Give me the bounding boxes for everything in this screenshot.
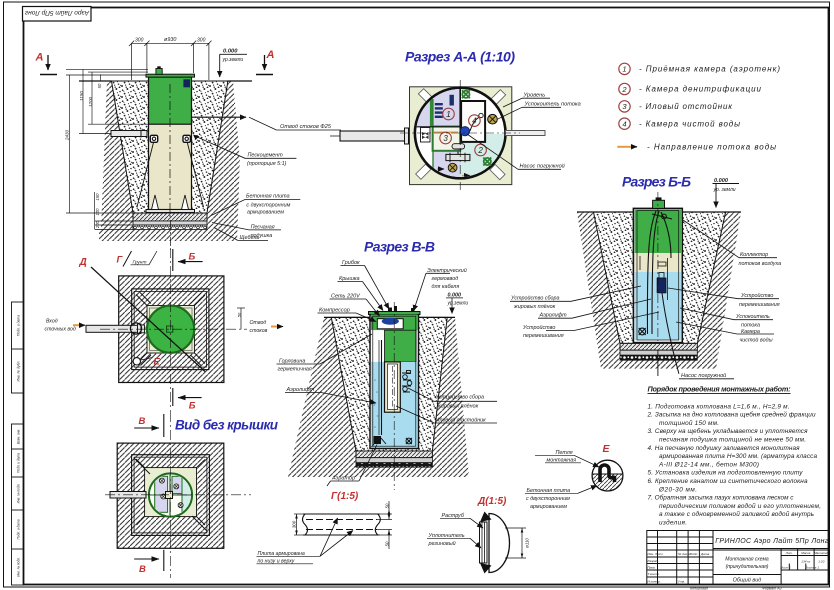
svg-text:Масштаб: Масштаб (814, 551, 829, 555)
svg-text:Разраб.: Разраб. (648, 559, 659, 563)
svg-text:Пескоцемент: Пескоцемент (248, 152, 284, 158)
svg-text:Горловина: Горловина (279, 358, 305, 364)
svg-text:песчаная подушка толщиной не м: песчаная подушка толщиной не менее 50 мм… (659, 436, 806, 444)
svg-text:Аэролифт: Аэролифт (286, 387, 315, 393)
svg-text:Подп. и дата: Подп. и дата (17, 519, 21, 539)
svg-text:Раструб: Раструб (442, 513, 465, 519)
svg-text:- Приёмная камера (аэротенк): - Приёмная камера (аэротенк) (639, 65, 780, 74)
svg-text:(пропорция 5:1): (пропорция 5:1) (247, 161, 287, 167)
svg-text:сточных вод: сточных вод (45, 327, 76, 333)
svg-text:4. На песчаную подушку заливае: 4. На песчаную подушку заливается моноли… (648, 444, 801, 452)
svg-text:Бетонная плита: Бетонная плита (246, 194, 290, 200)
svg-text:1150: 1150 (79, 91, 84, 101)
svg-text:1200: 1200 (88, 96, 93, 107)
svg-text:Сеть 220V: Сеть 220V (331, 293, 361, 299)
svg-text:Д: Д (79, 257, 87, 268)
svg-text:1: 1 (446, 110, 450, 119)
svg-text:3. Сверху на щебень укладывает: 3. Сверху на щебень укладывается и уплот… (648, 427, 809, 435)
svg-text:- Камера чистой воды: - Камера чистой воды (639, 119, 740, 128)
svg-text:Иловый отстойник: Иловый отстойник (436, 416, 487, 423)
svg-text:- Иловый отстойник: - Иловый отстойник (639, 102, 733, 111)
svg-text:толщиной 150 мм.: толщиной 150 мм. (659, 419, 719, 427)
svg-text:Электрический: Электрический (427, 267, 467, 274)
svg-text:Инв. № подл.: Инв. № подл. (17, 483, 21, 503)
svg-text:Вид без крышки: Вид без крышки (175, 418, 279, 433)
svg-text:- Камера денитрификации: - Камера денитрификации (639, 85, 762, 94)
svg-text:Н.контр.: Н.контр. (648, 580, 661, 584)
svg-text:ур.земли: ур.земли (447, 300, 469, 306)
svg-text:стоков: стоков (250, 328, 268, 334)
svg-text:5. Установка изделия на подгот: 5. Установка изделия на подготовленную п… (648, 469, 804, 477)
svg-text:2: 2 (477, 146, 483, 155)
svg-text:300: 300 (135, 38, 144, 44)
svg-text:2: 2 (621, 85, 627, 94)
svg-text:армированная плита Н=300 мм. (: армированная плита Н=300 мм. (арматура к… (659, 453, 817, 460)
svg-text:с двухсторонним: с двухсторонним (526, 496, 570, 502)
svg-text:Устройство: Устройство (522, 324, 555, 331)
svg-text:Отвод стоков Ф25: Отвод стоков Ф25 (280, 124, 332, 130)
svg-text:Бетонная плита: Бетонная плита (527, 488, 571, 494)
svg-text:Е: Е (154, 357, 161, 368)
svg-text:Инв. № подл.: Инв. № подл. (17, 557, 21, 577)
svg-text:Устройство сбора: Устройство сбора (510, 295, 560, 302)
svg-text:Е: Е (603, 443, 611, 455)
svg-text:изделия.: изделия. (659, 519, 687, 527)
svg-text:Г(1:5): Г(1:5) (331, 491, 359, 502)
svg-text:гермоввод: гермоввод (432, 276, 459, 282)
svg-text:монтажная: монтажная (547, 457, 577, 463)
svg-text:В: В (139, 564, 146, 575)
svg-text:периодическим поливом водой и: периодическим поливом водой и его уплотн… (659, 502, 821, 510)
svg-text:Аэролифт: Аэролифт (539, 313, 568, 319)
svg-text:7. Обратная засыпка пазух котл: 7. Обратная засыпка пазух котлована песк… (648, 494, 795, 502)
svg-text:А-III Ø12-14 мм., бетон М300): А-III Ø12-14 мм., бетон М300) (658, 460, 759, 468)
svg-text:Пров.: Пров. (648, 565, 656, 569)
svg-text:1:20: 1:20 (818, 560, 824, 564)
svg-text:Песчаная: Песчаная (251, 224, 275, 230)
svg-text:А: А (35, 52, 44, 64)
svg-text:6. Крепление канатом из синтет: 6. Крепление канатом из синтетического в… (648, 478, 808, 485)
svg-text:Разрез В-В: Разрез В-В (364, 239, 435, 255)
svg-text:Подп.: Подп. (690, 552, 698, 556)
svg-text:Подп. и дата: Подп. и дата (17, 315, 21, 336)
svg-text:Уровень: Уровень (523, 93, 546, 99)
svg-text:герметичная: герметичная (278, 366, 312, 372)
svg-text:Изм. Лист: Изм. Лист (648, 552, 664, 556)
svg-text:1. Подготовка котлована L=1,6: 1. Подготовка котлована L=1,6 м., Н=2,9 … (648, 402, 790, 410)
svg-text:0.000: 0.000 (223, 49, 238, 55)
svg-text:0.000: 0.000 (448, 292, 462, 298)
svg-text:2. Засыпка на дно котлована ще: 2. Засыпка на дно котлована щебня средне… (647, 411, 816, 419)
svg-text:Отвод: Отвод (250, 320, 267, 326)
svg-text:Насос погружной: Насос погружной (681, 372, 726, 379)
svg-text:Лист 1: Лист 1 (779, 566, 791, 570)
svg-text:ГРИНЛОС Аэро Лайт 5Пр Лонг: ГРИНЛОС Аэро Лайт 5Пр Лонг (715, 537, 829, 545)
svg-text:Плита армирована: Плита армирована (258, 551, 305, 557)
svg-text:для кабеля: для кабеля (432, 284, 460, 290)
svg-text:(принудительная): (принудительная) (726, 564, 769, 570)
svg-text:Общий вид: Общий вид (733, 577, 762, 584)
svg-text:Порядок проведения монтажных р: Порядок проведения монтажных работ: (648, 384, 792, 393)
svg-text:Листов 1: Листов 1 (804, 566, 819, 570)
svg-text:Формат А3: Формат А3 (762, 587, 782, 590)
svg-text:Вход: Вход (46, 319, 58, 325)
svg-text:Монтажная схема: Монтажная схема (725, 557, 769, 563)
svg-text:- Направление потока воды: - Направление потока воды (647, 143, 776, 152)
svg-text:Масса: Масса (801, 551, 810, 555)
svg-text:Устройство: Устройство (740, 292, 773, 299)
svg-text:300: 300 (292, 520, 297, 528)
svg-text:Разрез Б-Б: Разрез Б-Б (622, 174, 691, 190)
svg-text:А: А (266, 49, 275, 61)
svg-text:Копировал: Копировал (690, 587, 708, 590)
svg-text:Камера: Камера (741, 329, 760, 335)
svg-text:Устройство сбора: Устройство сбора (435, 394, 485, 401)
svg-text:ø930: ø930 (164, 37, 176, 43)
svg-text:Лит.: Лит. (785, 551, 793, 555)
svg-text:Инв. № дубл.: Инв. № дубл. (17, 361, 21, 382)
svg-text:ур.земли: ур.земли (222, 57, 244, 63)
svg-text:В: В (139, 416, 146, 427)
svg-text:Дата: Дата (700, 552, 709, 556)
svg-text:200: 200 (95, 220, 100, 229)
svg-text:Крышка: Крышка (339, 276, 360, 282)
svg-text:Утв.: Утв. (678, 580, 685, 584)
svg-text:2430: 2430 (65, 129, 70, 141)
svg-text:потоков воздуха: потоков воздуха (739, 261, 782, 267)
svg-text:3: 3 (443, 134, 448, 143)
svg-text:50: 50 (97, 83, 102, 88)
svg-text:армированием: армированием (530, 504, 567, 510)
svg-text:Б: Б (189, 401, 196, 412)
svg-text:Взам. инв.: Взам. инв. (17, 429, 21, 444)
svg-text:жировых плёнок: жировых плёнок (513, 304, 556, 310)
svg-text:чистой воды: чистой воды (740, 336, 773, 343)
svg-text:перемешивания: перемешивания (739, 302, 780, 308)
svg-text:Грибок: Грибок (342, 260, 360, 266)
svg-text:Успокоитель потока: Успокоитель потока (524, 102, 581, 108)
svg-text:100: 100 (95, 208, 100, 216)
svg-text:50: 50 (237, 312, 242, 317)
svg-text:134 кг: 134 кг (801, 560, 810, 564)
svg-text:жировых плёнок: жировых плёнок (436, 403, 479, 409)
svg-text:армированием: армированием (247, 210, 284, 216)
svg-text:Успокоитель: Успокоитель (735, 314, 770, 320)
svg-text:резиновый: резиновый (428, 540, 456, 547)
svg-text:300: 300 (197, 38, 206, 44)
svg-text:Коллектор: Коллектор (740, 252, 768, 258)
svg-text:150: 150 (95, 193, 100, 201)
svg-text:Грунт: Грунт (133, 259, 147, 265)
svg-text:по низу и верху: по низу и верху (258, 558, 295, 564)
svg-text:1: 1 (622, 65, 626, 74)
svg-text:Уплотнитель: Уплотнитель (428, 533, 465, 539)
svg-text:Насос погружной: Насос погружной (520, 163, 565, 170)
svg-text:4: 4 (472, 116, 477, 125)
svg-text:Аэро Лайт 5Пр Лонг: Аэро Лайт 5Пр Лонг (24, 9, 90, 17)
svg-text:Компрессор: Компрессор (319, 307, 350, 313)
svg-text:Разрез А-А (1:10): Разрез А-А (1:10) (405, 49, 515, 65)
svg-text:50: 50 (385, 503, 390, 508)
svg-text:Щебень: Щебень (240, 235, 260, 241)
svg-text:Аэратор: Аэратор (331, 475, 355, 481)
svg-text:с двухсторонним: с двухсторонним (246, 203, 290, 209)
svg-text:4: 4 (622, 120, 626, 129)
svg-text:ø110: ø110 (525, 538, 530, 548)
svg-text:50: 50 (385, 541, 390, 546)
svg-text:Петля: Петля (556, 450, 573, 456)
svg-text:потока: потока (741, 323, 760, 329)
svg-text:Т.контр.: Т.контр. (648, 572, 661, 576)
svg-text:Б: Б (189, 251, 196, 262)
svg-text:Ø20-30 мм.: Ø20-30 мм. (658, 486, 697, 493)
svg-text:перемешивания: перемешивания (523, 333, 564, 339)
svg-text:Подп. и дата: Подп. и дата (17, 453, 21, 473)
svg-text:Д(1:5): Д(1:5) (477, 496, 507, 507)
svg-text:а также с одновременной заливк: а также с одновременной заливкой водой в… (659, 510, 814, 518)
